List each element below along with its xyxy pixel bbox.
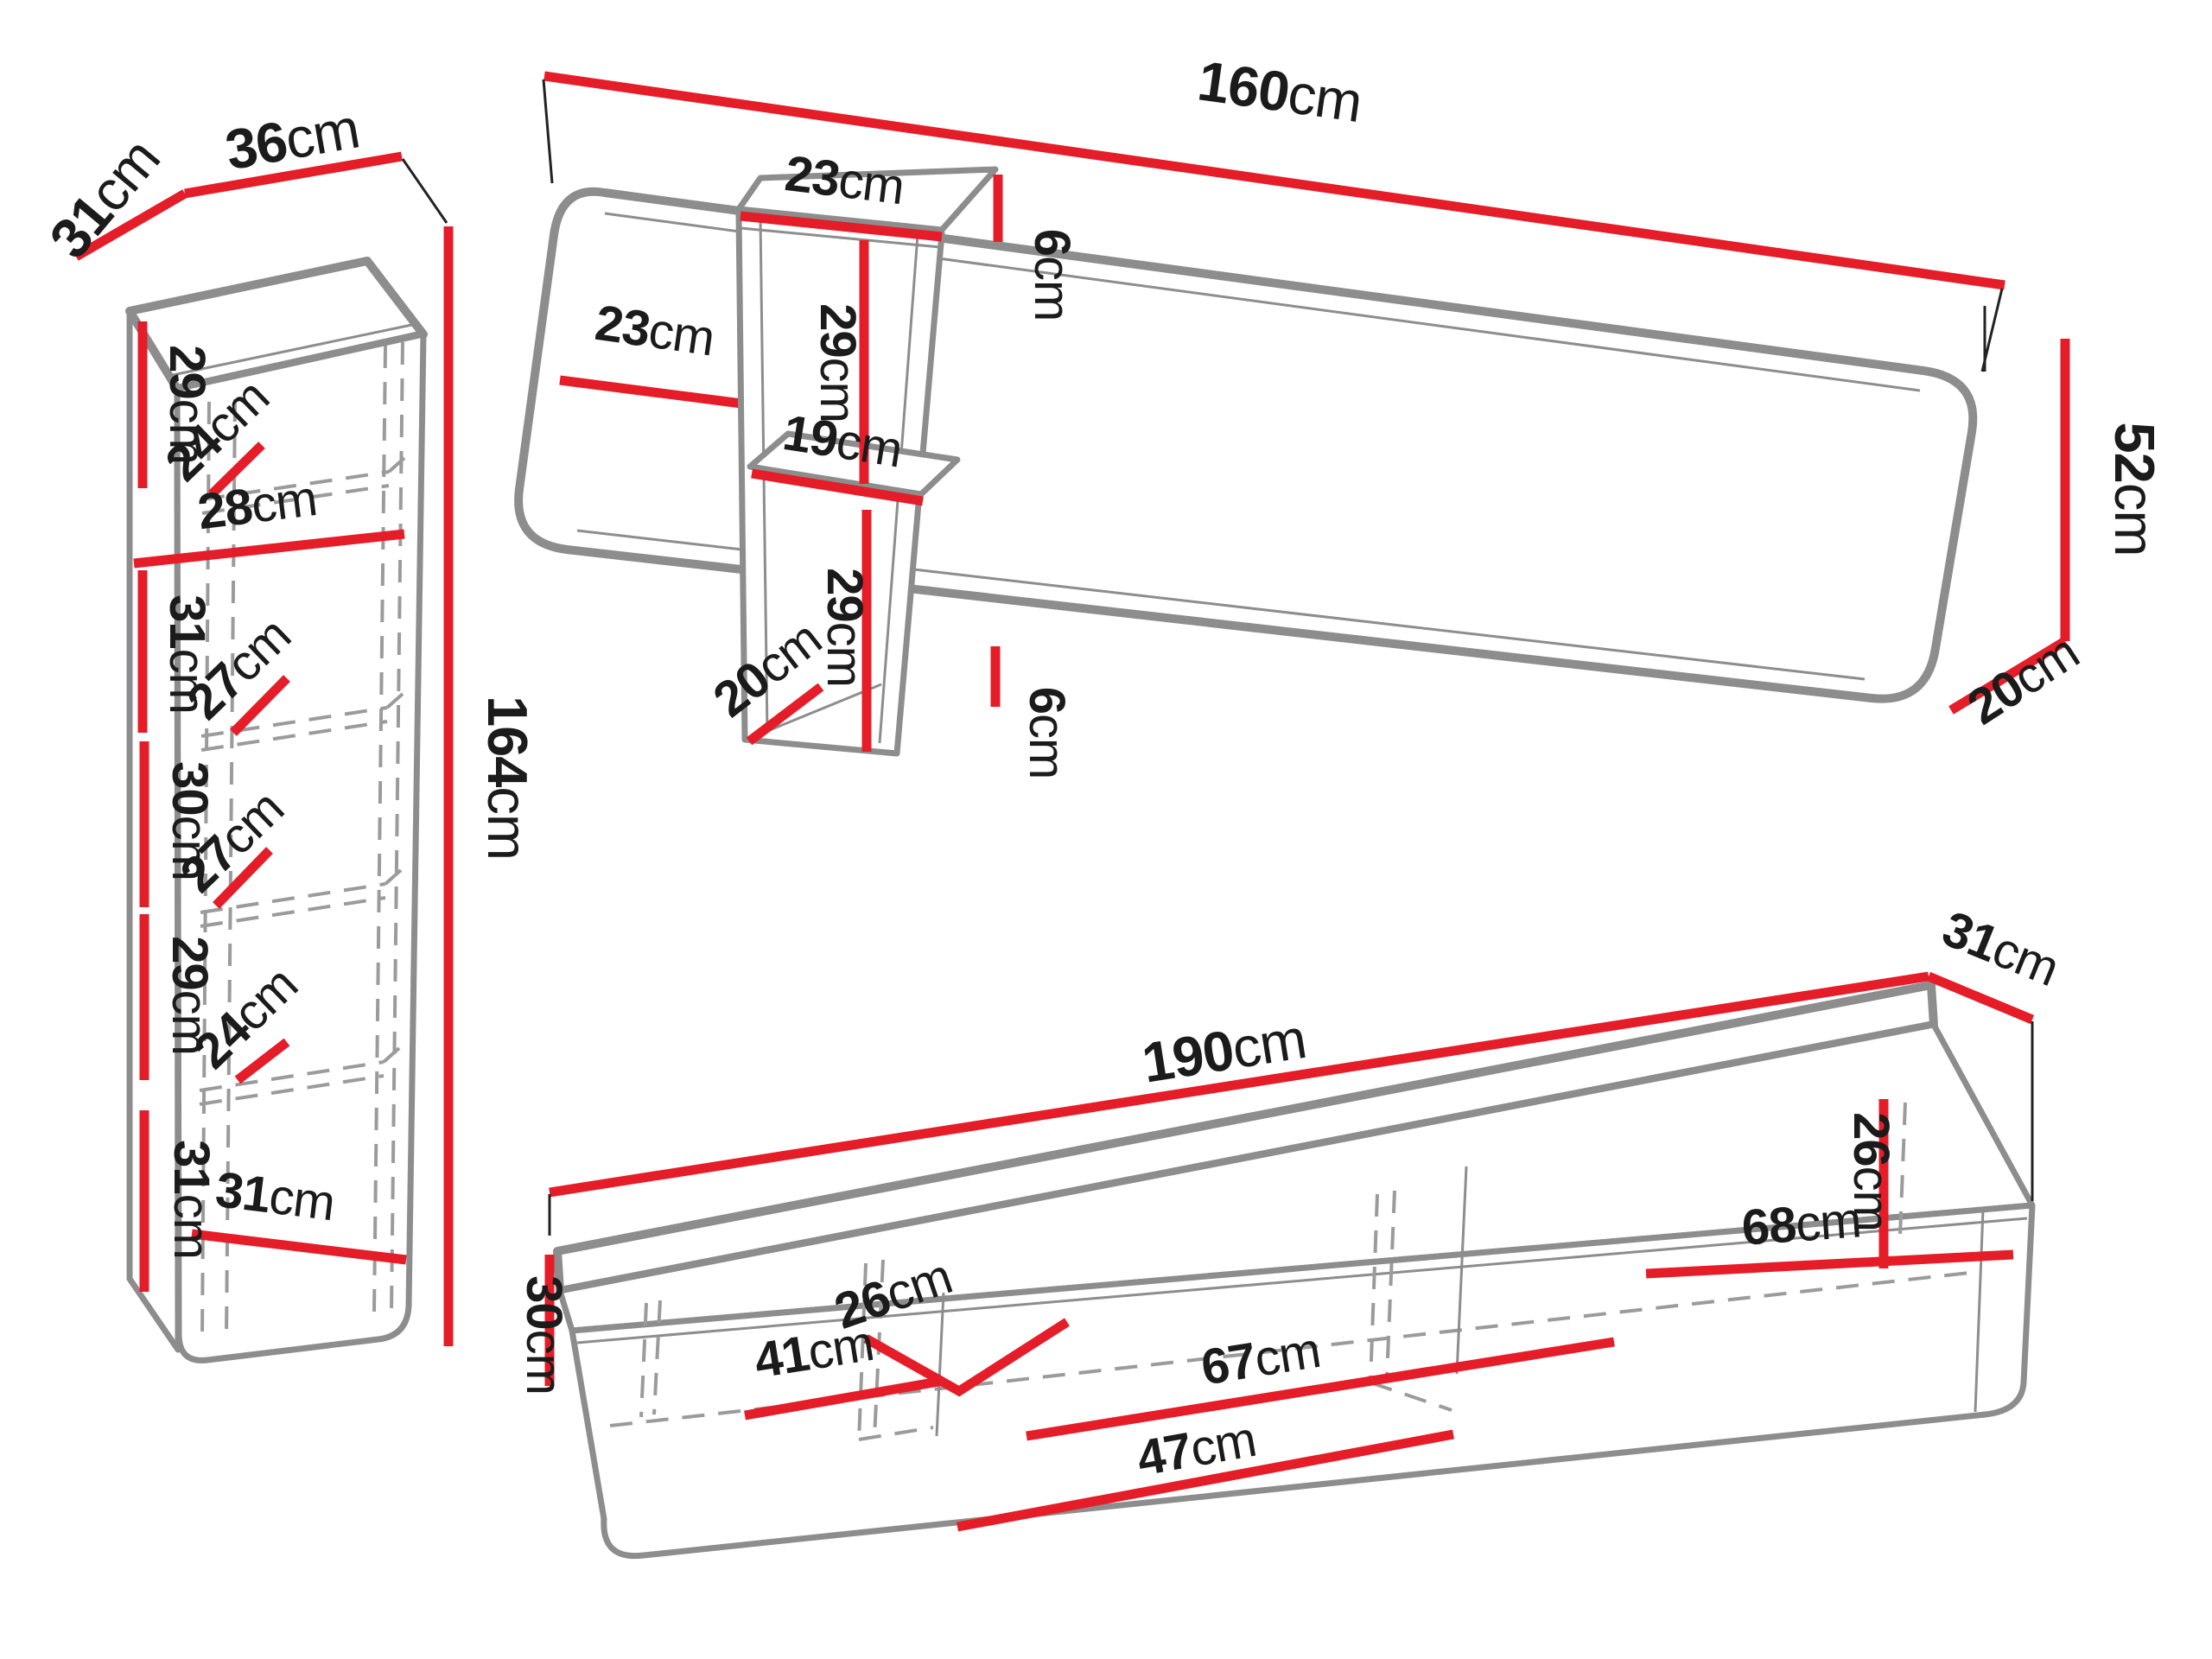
diagram-page: 31cm 36cm 164cm 29cm 24cm 28cm 31cm 27cm… [0, 0, 2212, 1659]
dim-label-cabinet-shelf5: 31cm [163, 1140, 219, 1259]
dim-label-shelf-unit-lower: 29cm [817, 568, 873, 687]
dim-label-panel-height: 52cm [2103, 423, 2166, 556]
tall-cabinet: 31cm 36cm 164cm 29cm 24cm 28cm 31cm 27cm… [37, 96, 539, 1360]
dim-label-cabinet-depth: 31cm [37, 127, 172, 270]
dim-label-panel-overhang-bottom: 6cm [1019, 687, 1075, 779]
dim-label-shelf-unit-upper: 29cm [810, 303, 866, 423]
dim-tick-cabinet-height [403, 159, 447, 223]
dim-tick-panel-width-left [543, 79, 552, 183]
dim-label-stand-inner-height: 26cm [1843, 1112, 1899, 1231]
dim-label-cabinet-height: 164cm [476, 696, 539, 860]
dim-label-panel-width: 160cm [1194, 48, 1365, 134]
tv-stand: 190cm 31cm 30cm 41cm 26cm 67cm 47cm 68cm… [516, 900, 2066, 1556]
dim-label-panel-overhang-top: 6cm [1024, 229, 1080, 321]
dim-label-stand-height: 30cm [516, 1275, 572, 1395]
furniture-dimension-diagram: 31cm 36cm 164cm 29cm 24cm 28cm 31cm 27cm… [0, 0, 2212, 1659]
